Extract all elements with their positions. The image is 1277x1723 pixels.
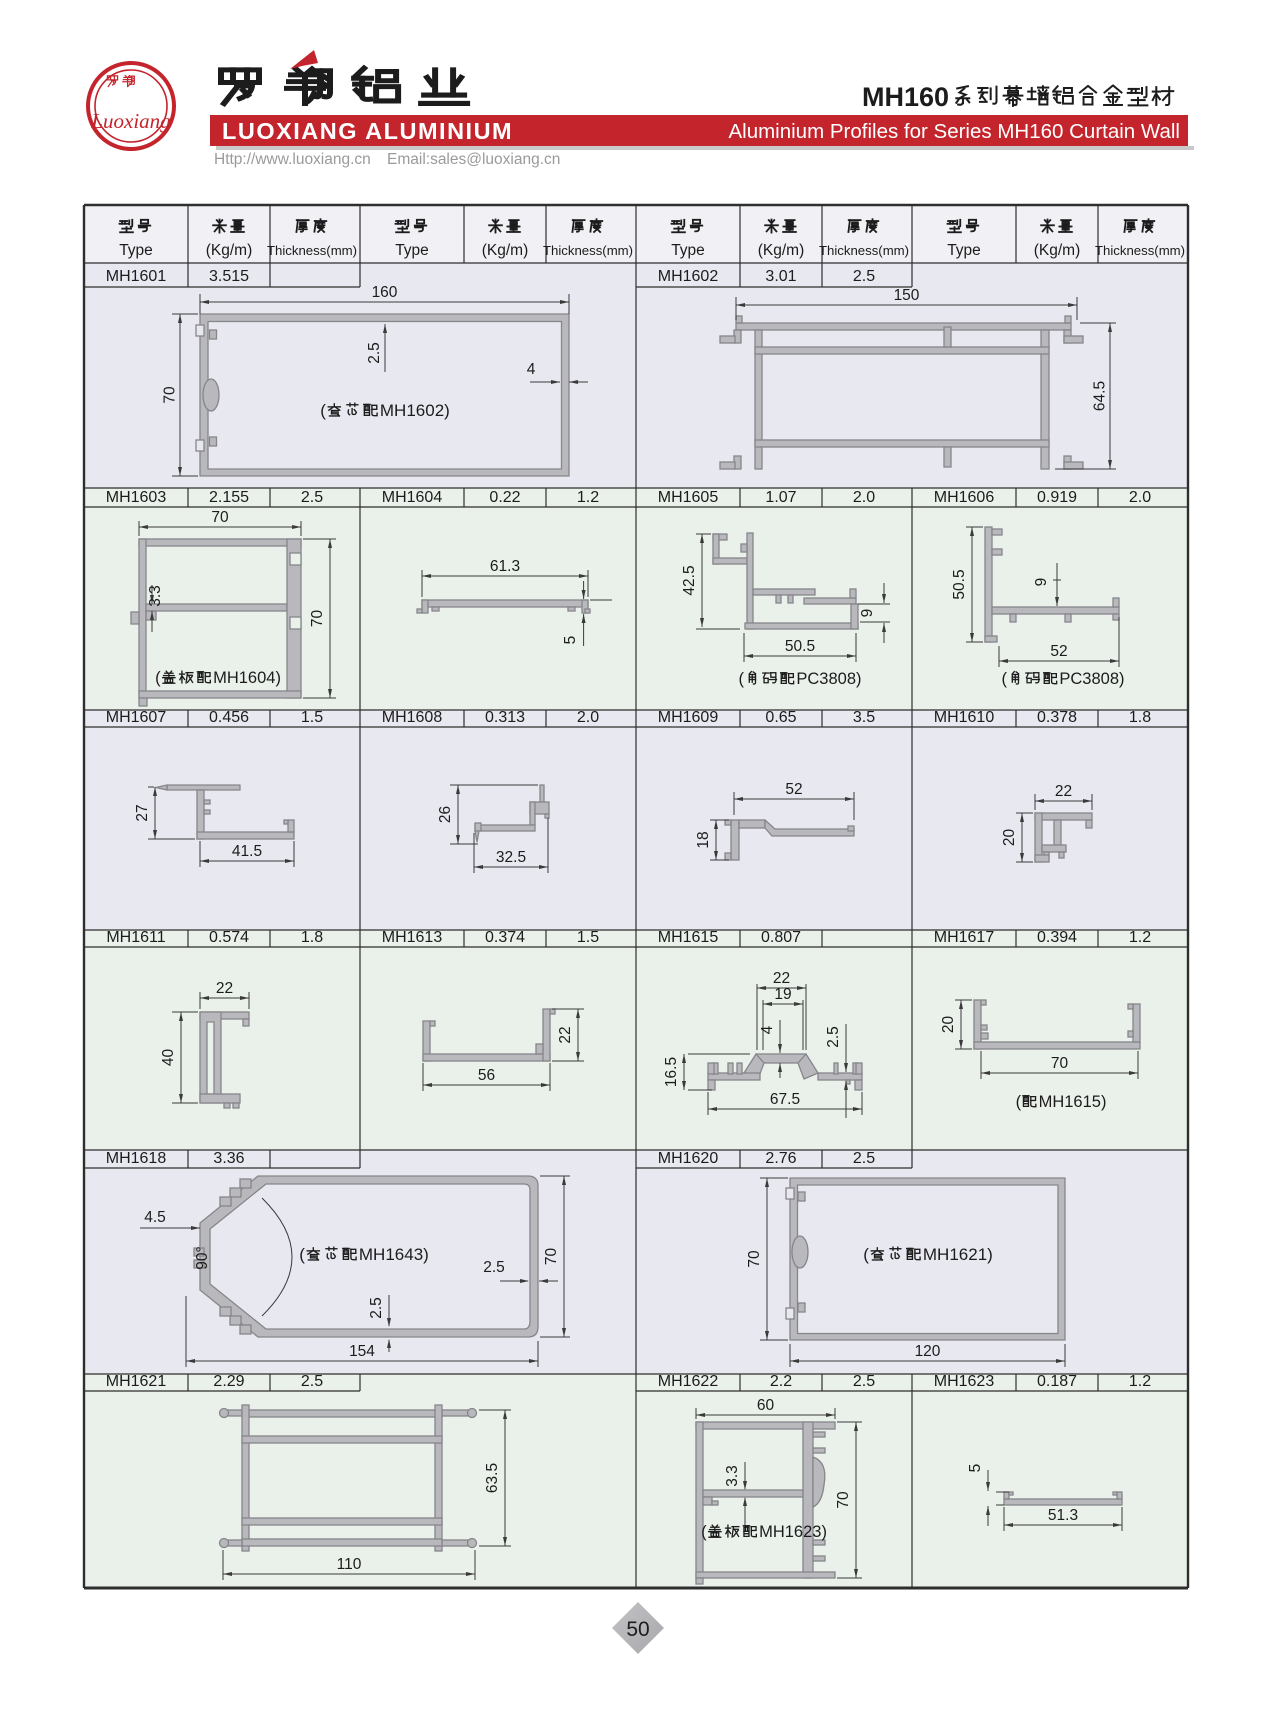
svg-text:42.5: 42.5 [681, 565, 698, 595]
svg-text:MH1621: MH1621 [106, 1373, 167, 1390]
svg-text:(: ( [1016, 1093, 1022, 1111]
svg-text:3.5: 3.5 [853, 709, 875, 726]
svg-text:MH1615: MH1615 [658, 929, 719, 946]
svg-text:4: 4 [527, 361, 536, 378]
svg-text:27: 27 [134, 804, 151, 821]
svg-text:MH1601: MH1601 [106, 268, 167, 285]
svg-text:MH1606: MH1606 [934, 489, 995, 506]
svg-text:1.5: 1.5 [577, 929, 599, 946]
svg-text:MH1611: MH1611 [106, 929, 165, 946]
svg-text:(: ( [701, 1523, 707, 1541]
svg-text:2.5: 2.5 [853, 1150, 875, 1167]
svg-text:MH1623): MH1623) [759, 1523, 827, 1541]
svg-text:MH1608: MH1608 [382, 709, 443, 726]
svg-text:2.5: 2.5 [853, 268, 875, 285]
svg-text:64.5: 64.5 [1092, 381, 1109, 411]
svg-text:(: ( [299, 1245, 305, 1264]
svg-text:51.3: 51.3 [1048, 1507, 1078, 1524]
svg-text:MH1617: MH1617 [934, 929, 995, 946]
svg-text:52: 52 [785, 781, 802, 798]
svg-text:70: 70 [309, 610, 326, 628]
svg-text:LUOXIANG ALUMINIUM: LUOXIANG ALUMINIUM [222, 118, 513, 144]
svg-text:Email:sales@luoxiang.cn: Email:sales@luoxiang.cn [387, 151, 560, 168]
svg-text:MH1605: MH1605 [658, 489, 719, 506]
svg-text:1.2: 1.2 [1129, 1373, 1151, 1390]
svg-text:160: 160 [372, 284, 398, 301]
svg-text:3.515: 3.515 [209, 268, 249, 285]
svg-text:1.2: 1.2 [577, 489, 599, 506]
svg-text:2.5: 2.5 [825, 1026, 842, 1048]
svg-text:63.5: 63.5 [484, 1463, 501, 1493]
svg-text:4.5: 4.5 [144, 1209, 166, 1226]
svg-text:9: 9 [1033, 578, 1050, 587]
svg-text:2.5: 2.5 [301, 489, 323, 506]
svg-text:(Kg/m): (Kg/m) [482, 242, 529, 259]
svg-text:Aluminium Profiles for Series: Aluminium Profiles for Series MH160 Curt… [728, 120, 1180, 143]
svg-text:150: 150 [894, 287, 920, 304]
svg-text:Type: Type [671, 242, 705, 259]
svg-text:5: 5 [967, 1464, 984, 1473]
svg-text:110: 110 [337, 1556, 362, 1573]
svg-text:MH1604: MH1604 [382, 489, 443, 506]
svg-text:0.456: 0.456 [209, 709, 249, 726]
svg-text:0.807: 0.807 [761, 929, 801, 946]
svg-text:70: 70 [835, 1491, 852, 1509]
svg-text:50.5: 50.5 [785, 638, 815, 655]
svg-text:MH1613: MH1613 [382, 929, 443, 946]
svg-text:0.65: 0.65 [765, 709, 796, 726]
svg-text:56: 56 [478, 1067, 495, 1084]
svg-text:1.5: 1.5 [301, 709, 323, 726]
svg-text:Thickness(mm): Thickness(mm) [267, 243, 357, 258]
svg-text:Type: Type [947, 242, 981, 259]
svg-text:0.313: 0.313 [485, 709, 525, 726]
svg-text:1.8: 1.8 [1129, 709, 1151, 726]
svg-text:(: ( [1002, 670, 1008, 688]
svg-text:MH1603: MH1603 [106, 489, 167, 506]
svg-text:MH1602): MH1602) [380, 401, 450, 420]
svg-text:1.2: 1.2 [1129, 929, 1151, 946]
svg-text:3.01: 3.01 [765, 268, 796, 285]
svg-text:70: 70 [211, 509, 229, 526]
svg-text:2.76: 2.76 [765, 1150, 796, 1167]
svg-text:MH1622: MH1622 [658, 1373, 719, 1390]
svg-text:MH1615): MH1615) [1039, 1093, 1107, 1111]
svg-text:16.5: 16.5 [663, 1057, 680, 1087]
svg-text:MH1609: MH1609 [658, 709, 719, 726]
svg-text:MH1607: MH1607 [106, 709, 167, 726]
svg-text:26: 26 [437, 806, 454, 823]
svg-text:2.5: 2.5 [366, 342, 383, 364]
svg-text:2.5: 2.5 [853, 1373, 875, 1390]
svg-text:0.394: 0.394 [1037, 929, 1077, 946]
svg-text:41.5: 41.5 [232, 843, 262, 860]
svg-text:0.574: 0.574 [209, 929, 249, 946]
svg-text:(: ( [739, 670, 745, 688]
svg-text:9: 9 [859, 609, 876, 618]
svg-text:MH1602: MH1602 [658, 268, 719, 285]
svg-text:50: 50 [626, 1618, 649, 1641]
svg-text:MH1621): MH1621) [923, 1245, 993, 1264]
svg-text:0.22: 0.22 [489, 489, 520, 506]
svg-text:0.919: 0.919 [1037, 489, 1077, 506]
svg-text:2.0: 2.0 [853, 489, 875, 506]
svg-text:0.378: 0.378 [1037, 709, 1077, 726]
svg-text:2.155: 2.155 [209, 489, 249, 506]
svg-text:52: 52 [1050, 643, 1067, 660]
svg-text:5: 5 [562, 636, 579, 645]
svg-text:2.0: 2.0 [577, 709, 599, 726]
svg-text:120: 120 [915, 1343, 941, 1360]
svg-text:(Kg/m): (Kg/m) [206, 242, 253, 259]
svg-text:60: 60 [757, 1397, 775, 1414]
svg-text:(: ( [155, 669, 161, 687]
svg-text:70: 70 [162, 386, 179, 404]
svg-text:Luoxiang: Luoxiang [90, 109, 170, 133]
svg-text:MH1604): MH1604) [213, 669, 281, 687]
svg-text:Thickness(mm): Thickness(mm) [1095, 243, 1185, 258]
svg-text:70: 70 [746, 1250, 763, 1268]
svg-text:Type: Type [119, 242, 153, 259]
svg-text:Type: Type [395, 242, 429, 259]
svg-text:20: 20 [940, 1016, 957, 1034]
svg-text:32.5: 32.5 [496, 849, 526, 866]
svg-text:50.5: 50.5 [951, 569, 968, 599]
svg-text:22: 22 [1055, 783, 1072, 800]
svg-text:2.0: 2.0 [1129, 489, 1151, 506]
svg-text:22: 22 [773, 970, 790, 987]
svg-text:4: 4 [759, 1025, 776, 1034]
svg-text:PC3808): PC3808) [1059, 670, 1124, 688]
svg-text:40: 40 [160, 1049, 177, 1067]
svg-text:PC3808): PC3808) [796, 670, 861, 688]
svg-text:Thickness(mm): Thickness(mm) [819, 243, 909, 258]
svg-text:22: 22 [557, 1026, 574, 1043]
svg-text:(Kg/m): (Kg/m) [758, 242, 805, 259]
svg-text:(: ( [863, 1245, 869, 1264]
svg-text:1.8: 1.8 [301, 929, 323, 946]
svg-text:2.29: 2.29 [213, 1373, 244, 1390]
svg-text:67.5: 67.5 [770, 1091, 800, 1108]
svg-text:22: 22 [216, 980, 233, 997]
svg-text:MH1618: MH1618 [106, 1150, 167, 1167]
svg-text:(Kg/m): (Kg/m) [1034, 242, 1081, 259]
svg-text:Thickness(mm): Thickness(mm) [543, 243, 633, 258]
svg-text:2.5: 2.5 [368, 1297, 385, 1319]
svg-text:61.3: 61.3 [490, 558, 520, 575]
svg-text:3.36: 3.36 [213, 1150, 244, 1167]
svg-text:1.07: 1.07 [765, 489, 796, 506]
svg-text:19: 19 [774, 986, 791, 1003]
svg-text:MH160: MH160 [862, 82, 949, 112]
svg-text:2.5: 2.5 [301, 1373, 323, 1390]
svg-text:154: 154 [349, 1343, 375, 1360]
svg-text:Http://www.luoxiang.cn: Http://www.luoxiang.cn [214, 151, 371, 168]
svg-text:MH1610: MH1610 [934, 709, 995, 726]
svg-text:(: ( [320, 401, 326, 420]
svg-text:70: 70 [543, 1248, 560, 1266]
svg-text:3.3: 3.3 [147, 585, 164, 607]
svg-text:90°: 90° [194, 1246, 211, 1269]
svg-text:70: 70 [1051, 1055, 1069, 1072]
svg-text:2.5: 2.5 [483, 1259, 505, 1276]
svg-text:2.2: 2.2 [770, 1373, 792, 1390]
svg-text:0.187: 0.187 [1037, 1373, 1077, 1390]
svg-text:20: 20 [1001, 829, 1018, 847]
svg-text:MH1623: MH1623 [934, 1373, 995, 1390]
svg-text:0.374: 0.374 [485, 929, 525, 946]
svg-text:MH1620: MH1620 [658, 1150, 719, 1167]
svg-text:MH1643): MH1643) [359, 1245, 429, 1264]
svg-text:18: 18 [695, 831, 712, 848]
svg-text:3.3: 3.3 [724, 1465, 741, 1487]
